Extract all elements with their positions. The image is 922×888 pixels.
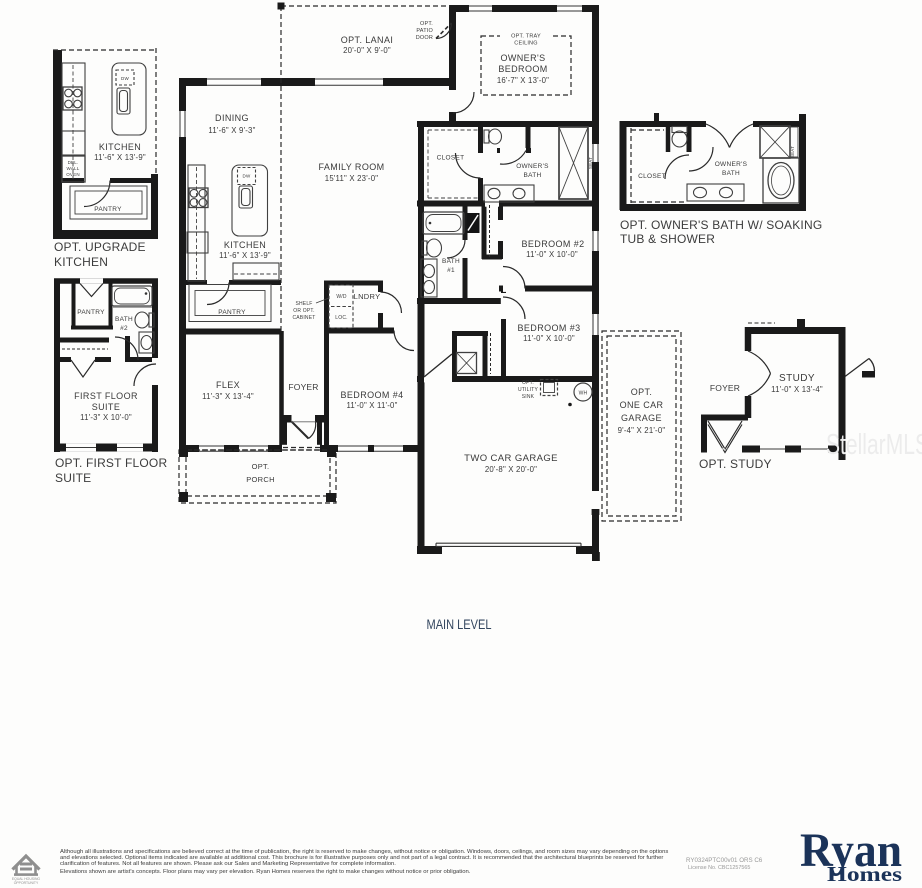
svg-text:OVEN: OVEN — [66, 172, 80, 177]
svg-text:FIRST FLOOR: FIRST FLOOR — [74, 391, 138, 401]
svg-text:CEILING: CEILING — [514, 41, 537, 47]
svg-text:SUITE: SUITE — [92, 402, 121, 412]
svg-text:11'-0" X 10'-0": 11'-0" X 10'-0" — [526, 250, 578, 259]
svg-text:WH: WH — [579, 391, 588, 397]
svg-text:KITCHEN: KITCHEN — [224, 240, 266, 250]
svg-text:20'-8" X 20'-0": 20'-8" X 20'-0" — [485, 465, 537, 474]
svg-text:OPT. UPGRADE: OPT. UPGRADE — [54, 240, 146, 254]
svg-text:SINK: SINK — [522, 394, 535, 400]
svg-text:11'-3" X 13'-4": 11'-3" X 13'-4" — [202, 392, 254, 401]
svg-text:PANTRY: PANTRY — [218, 309, 246, 316]
svg-text:OPT. OWNER'S BATH W/ SOAKING: OPT. OWNER'S BATH W/ SOAKING — [620, 218, 822, 232]
svg-text:OPT. STUDY: OPT. STUDY — [699, 457, 772, 471]
svg-text:#2: #2 — [120, 325, 128, 332]
svg-text:BEDROOM #3: BEDROOM #3 — [517, 323, 580, 333]
svg-text:#1: #1 — [447, 267, 455, 274]
svg-text:11'-6" X 9'-3": 11'-6" X 9'-3" — [208, 126, 255, 135]
svg-text:ONE CAR: ONE CAR — [620, 400, 664, 410]
svg-text:OPT.: OPT. — [522, 380, 534, 386]
svg-text:W/D: W/D — [336, 294, 347, 300]
svg-text:11'-6" X 13'-9": 11'-6" X 13'-9" — [94, 153, 146, 162]
svg-text:OPT.: OPT. — [252, 462, 270, 471]
svg-text:DINING: DINING — [215, 113, 249, 123]
svg-text:OPT.: OPT. — [420, 21, 433, 27]
svg-text:OPPORTUNITY: OPPORTUNITY — [14, 881, 39, 885]
svg-text:BEDROOM #4: BEDROOM #4 — [340, 390, 403, 400]
svg-text:MAIN LEVEL: MAIN LEVEL — [427, 616, 492, 632]
svg-text:PATIO: PATIO — [416, 28, 433, 34]
svg-text:FOYER: FOYER — [710, 383, 740, 393]
svg-text:STUDY: STUDY — [779, 373, 815, 384]
svg-text:UTILITY: UTILITY — [518, 387, 538, 393]
svg-text:WALL: WALL — [67, 166, 80, 171]
svg-text:BATH: BATH — [115, 316, 133, 323]
svg-text:DW: DW — [121, 76, 129, 81]
svg-text:OPT. TRAY: OPT. TRAY — [511, 34, 541, 40]
svg-text:BEDROOM: BEDROOM — [498, 64, 547, 74]
svg-text:BATH: BATH — [442, 258, 460, 265]
svg-text:OWNER'S: OWNER'S — [500, 53, 545, 63]
svg-text:DOOR: DOOR — [416, 35, 433, 41]
svg-text:TWO CAR GARAGE: TWO CAR GARAGE — [464, 453, 558, 464]
svg-text:FOYER: FOYER — [288, 382, 318, 392]
svg-text:Homes: Homes — [827, 862, 902, 886]
svg-text:9'-4" X 21'-0": 9'-4" X 21'-0" — [618, 426, 666, 435]
svg-text:SUITE: SUITE — [55, 471, 91, 485]
svg-text:11'-0" X 13'-4": 11'-0" X 13'-4" — [771, 385, 823, 394]
svg-text:OPT.: OPT. — [631, 387, 653, 397]
svg-text:License No. CBC1257565: License No. CBC1257565 — [688, 865, 750, 871]
svg-text:OWNER'S: OWNER'S — [516, 163, 549, 170]
svg-text:16'-7" X 13'-0": 16'-7" X 13'-0" — [497, 76, 549, 85]
svg-text:GARAGE: GARAGE — [621, 413, 662, 423]
svg-text:11'-0" X 10'-0": 11'-0" X 10'-0" — [523, 334, 575, 343]
svg-text:LOC.: LOC. — [335, 315, 347, 321]
svg-text:OPT. LANAI: OPT. LANAI — [341, 35, 394, 45]
svg-text:BEDROOM #2: BEDROOM #2 — [521, 239, 584, 249]
svg-text:SHELF: SHELF — [295, 301, 312, 307]
svg-text:CABINET: CABINET — [292, 315, 315, 321]
svg-text:FLEX: FLEX — [216, 380, 240, 390]
svg-text:SEAT: SEAT — [790, 146, 795, 158]
svg-text:DBL.: DBL. — [68, 160, 79, 165]
svg-text:KITCHEN: KITCHEN — [99, 142, 141, 152]
svg-text:11'-0" X 11'-0": 11'-0" X 11'-0" — [346, 401, 397, 410]
svg-text:PANTRY: PANTRY — [77, 309, 105, 316]
svg-text:OPT. FIRST FLOOR: OPT. FIRST FLOOR — [55, 456, 167, 470]
svg-text:BATH: BATH — [722, 170, 740, 177]
svg-text:15'11" X 23'-0": 15'11" X 23'-0" — [325, 174, 378, 183]
svg-text:PORCH: PORCH — [246, 475, 275, 484]
svg-text:SEAT: SEAT — [588, 157, 593, 169]
svg-text:OWNER'S: OWNER'S — [715, 161, 748, 168]
svg-text:RY0324PTC00v01 ORS C6: RY0324PTC00v01 ORS C6 — [686, 857, 763, 864]
svg-text:CLOSET: CLOSET — [437, 155, 465, 162]
svg-text:clarification of features. Not: clarification of features. Not all featu… — [60, 861, 396, 867]
svg-text:Elevations shown are artist's: Elevations shown are artist's concepts. … — [60, 869, 471, 875]
svg-text:KITCHEN: KITCHEN — [54, 255, 108, 269]
svg-text:OR OPT.: OR OPT. — [293, 308, 314, 314]
svg-text:CLOSET: CLOSET — [638, 173, 666, 180]
svg-text:FAMILY ROOM: FAMILY ROOM — [318, 162, 384, 172]
svg-text:20'-0" X 9'-0": 20'-0" X 9'-0" — [343, 46, 391, 55]
svg-text:DW: DW — [243, 174, 251, 179]
svg-text:LNDRY: LNDRY — [354, 292, 381, 301]
svg-text:BATH: BATH — [523, 172, 541, 179]
svg-text:11'-6" X 13'-9": 11'-6" X 13'-9" — [219, 251, 271, 260]
svg-text:StellarMLS: StellarMLS — [826, 429, 922, 461]
svg-text:PANTRY: PANTRY — [94, 206, 122, 213]
svg-text:TUB & SHOWER: TUB & SHOWER — [620, 232, 715, 246]
svg-text:11'-3" X 10'-0": 11'-3" X 10'-0" — [80, 413, 132, 422]
